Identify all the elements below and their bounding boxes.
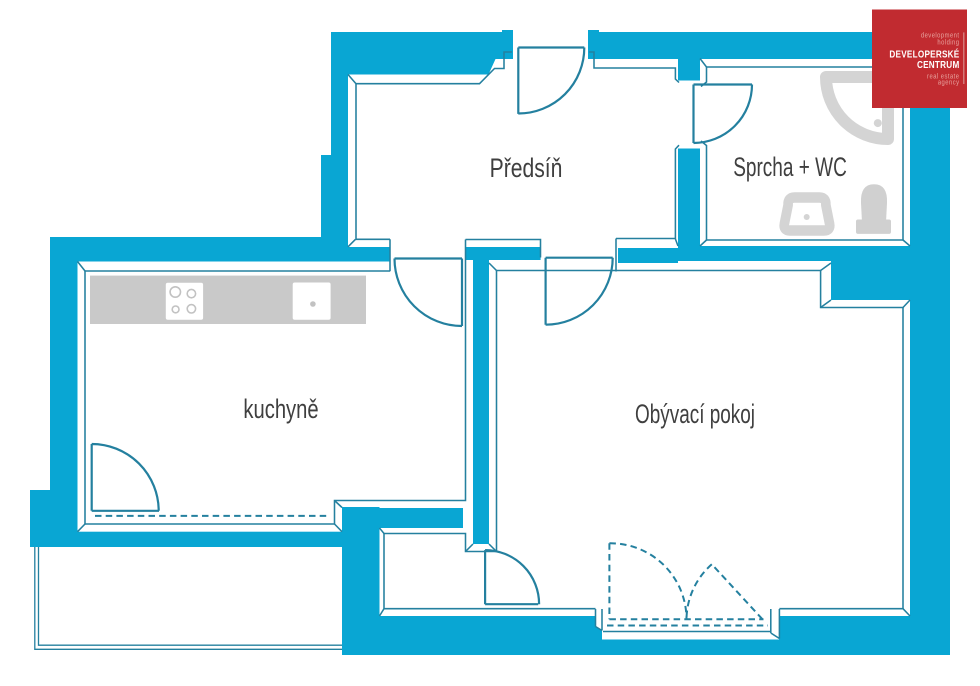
- svg-text:Předsíň: Předsíň: [490, 154, 563, 184]
- svg-text:kuchyně: kuchyně: [243, 395, 318, 425]
- svg-text:agency: agency: [938, 79, 960, 87]
- svg-text:Sprcha + WC: Sprcha + WC: [733, 153, 847, 183]
- svg-text:CENTRUM: CENTRUM: [917, 58, 960, 70]
- svg-text:holding: holding: [937, 39, 959, 47]
- svg-text:Obývací pokoj: Obývací pokoj: [635, 400, 755, 430]
